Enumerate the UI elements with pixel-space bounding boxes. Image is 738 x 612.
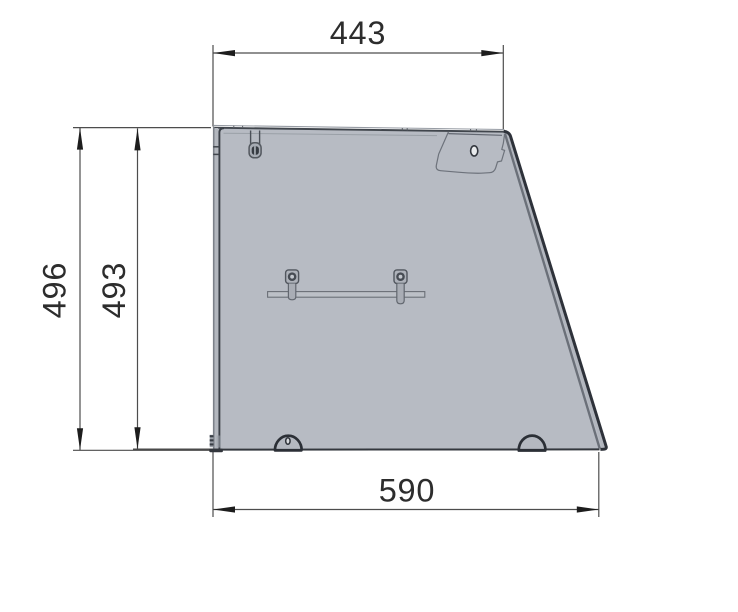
svg-text:443: 443 <box>330 15 387 51</box>
svg-text:493: 493 <box>96 262 132 319</box>
svg-text:496: 496 <box>37 262 73 319</box>
svg-text:590: 590 <box>379 473 436 509</box>
